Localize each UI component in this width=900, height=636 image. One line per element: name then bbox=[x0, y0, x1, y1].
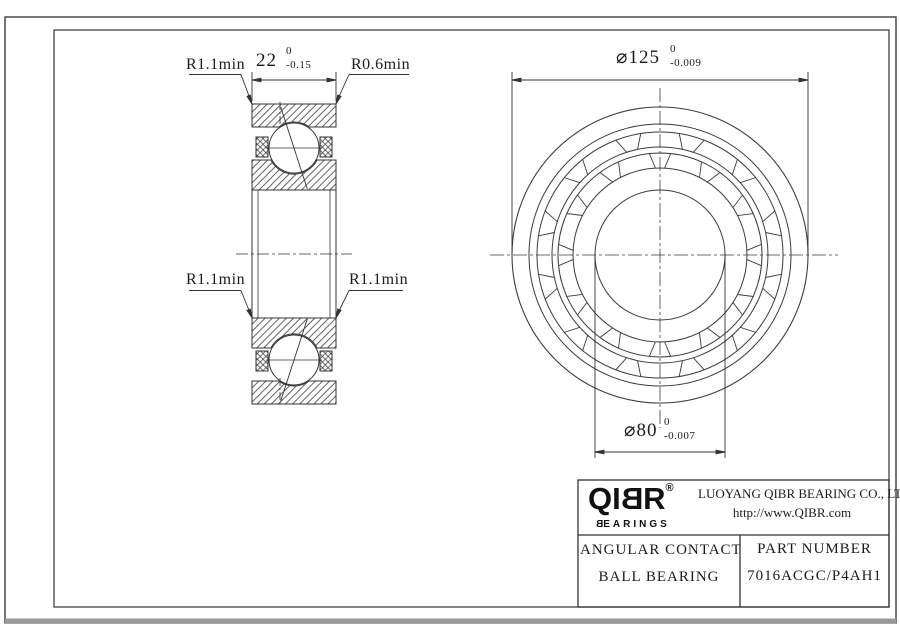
part-number-value: 7016ACGC/P4AH1 bbox=[742, 569, 887, 584]
width-dimension-lower-tol: -0.15 bbox=[286, 60, 311, 71]
radius-label-top-left: R1.1min bbox=[186, 57, 245, 73]
part-number-label: PART NUMBER bbox=[742, 542, 887, 557]
cross-section-view bbox=[236, 102, 352, 406]
registered-mark: ® bbox=[666, 482, 674, 494]
brand-sub: BEARINGS bbox=[593, 520, 670, 530]
width-dimension-upper-tol: 0 bbox=[286, 46, 292, 57]
cage-section bbox=[256, 137, 268, 157]
logo-part: R bbox=[643, 481, 665, 516]
sheet-frames bbox=[5, 17, 896, 623]
outer-diameter-lower-tol: -0.009 bbox=[670, 58, 701, 69]
width-dimension-value: 22 bbox=[256, 51, 277, 70]
cage-section bbox=[320, 137, 332, 157]
company-website: http://www.QIBR.com bbox=[698, 506, 886, 519]
brand-sub-rest: EARINGS bbox=[603, 519, 670, 530]
bore-diameter-lower-tol: -0.007 bbox=[664, 431, 695, 442]
product-type-line1: ANGULAR CONTACT bbox=[580, 543, 738, 558]
outer-diameter-upper-tol: 0 bbox=[670, 44, 676, 55]
bore-diameter-value: ⌀80 bbox=[624, 421, 657, 440]
radius-label-mid-right: R1.1min bbox=[349, 272, 408, 288]
brand-sub-flipped-b: B bbox=[593, 520, 603, 530]
top-section bbox=[252, 102, 336, 190]
radius-label-top-right: R0.6min bbox=[351, 57, 410, 73]
product-type-line2: BALL BEARING bbox=[580, 570, 738, 585]
outer-diameter-value: ⌀125 bbox=[616, 48, 660, 67]
bore-diameter-upper-tol: 0 bbox=[664, 417, 670, 428]
front-view bbox=[490, 88, 838, 428]
radius-label-mid-left: R1.1min bbox=[186, 272, 245, 288]
logo-flipped-b: B bbox=[621, 483, 643, 514]
bottom-section bbox=[252, 318, 336, 406]
cage-section bbox=[320, 351, 332, 371]
logo-part: QI bbox=[588, 481, 621, 516]
cage-section bbox=[256, 351, 268, 371]
brand-logo: QIBR® bbox=[588, 483, 674, 514]
company-name: LUOYANG QIBR BEARING CO., LTD bbox=[698, 487, 886, 500]
drawing-sheet: R1.1min 22 0 -0.15 R0.6min R1.1min R1.1m… bbox=[0, 0, 900, 636]
